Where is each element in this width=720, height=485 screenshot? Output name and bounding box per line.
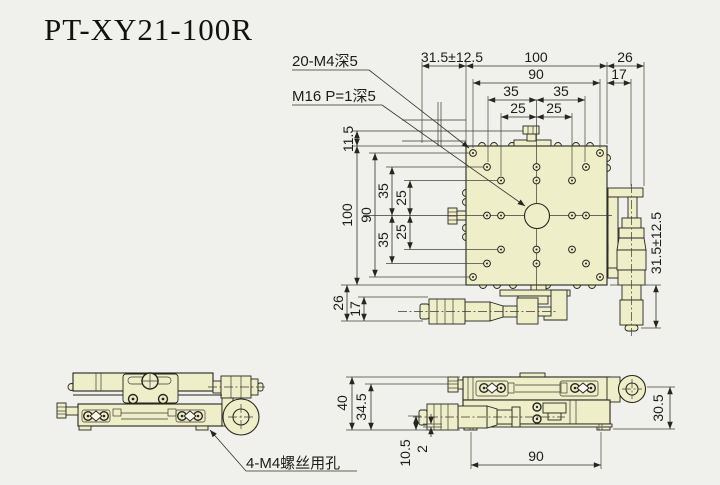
dim-pitch25-left: 25 bbox=[510, 100, 526, 116]
front-left-knob[interactable] bbox=[57, 403, 78, 418]
side-bearing bbox=[619, 376, 646, 403]
dim-pitch25-top: 25 bbox=[393, 190, 409, 206]
front-center-plate bbox=[123, 373, 178, 404]
dim-bottom-17: 17 bbox=[347, 301, 363, 317]
callout-screw-holes: 4-M4螺丝用孔 bbox=[246, 455, 340, 472]
dim-lip-2: 2 bbox=[414, 445, 430, 453]
dim-right-height-30p5: 30.5 bbox=[650, 394, 666, 421]
front-foot-left bbox=[79, 426, 91, 430]
front-view: 4-M4螺丝用孔 bbox=[57, 373, 357, 472]
dim-mic-axis-10p5: 10.5 bbox=[397, 439, 413, 466]
dim-hole-span-90: 90 bbox=[528, 448, 544, 464]
front-bearing bbox=[223, 399, 259, 435]
dim-travel-right: 31.5±12.5 bbox=[648, 212, 664, 274]
dim-bolt-span-90: 90 bbox=[528, 66, 544, 82]
construction-lines bbox=[352, 62, 523, 146]
dim-overall-width: 100 bbox=[524, 49, 548, 65]
dim-offset-17: 17 bbox=[611, 66, 627, 82]
dim-knob-axis-34p5: 34.5 bbox=[353, 393, 369, 420]
front-foot-right bbox=[196, 426, 208, 430]
dim-pitch25-right: 25 bbox=[546, 100, 562, 116]
callout-mount-holes: 20-M4深5 bbox=[292, 53, 358, 70]
side-view: 40 34.5 10.5 2 90 30.5 bbox=[334, 373, 675, 469]
dim-pitch25-bottom: 25 bbox=[393, 224, 409, 240]
dim-bolt-span-90-left: 90 bbox=[358, 207, 374, 223]
dim-edge-11p5: 11.5 bbox=[340, 126, 356, 152]
dim-overall-height: 100 bbox=[339, 203, 355, 227]
dim-pitch35-left: 35 bbox=[503, 83, 519, 99]
top-lock-knob bbox=[514, 126, 551, 146]
side-left-knob[interactable] bbox=[448, 377, 463, 392]
front-callout: 4-M4螺丝用孔 bbox=[210, 430, 357, 472]
dim-height-40: 40 bbox=[334, 395, 350, 411]
x-axis-micrometer[interactable] bbox=[398, 285, 570, 324]
top-view: 31.5±12.5 100 26 90 17 35 35 25 25 bbox=[292, 49, 664, 336]
dim-pitch35-right: 35 bbox=[553, 83, 569, 99]
engineering-drawing: 31.5±12.5 100 26 90 17 35 35 25 25 bbox=[0, 0, 720, 485]
dim-pitch35-bottom: 35 bbox=[375, 232, 391, 248]
dim-travel-top: 31.5±12.5 bbox=[421, 49, 483, 65]
callout-center-thread: M16 P=1深5 bbox=[292, 88, 376, 105]
y-axis-micrometer[interactable] bbox=[617, 184, 646, 336]
dim-pitch35-top: 35 bbox=[375, 183, 391, 199]
dim-bottom-26: 26 bbox=[330, 295, 346, 311]
dim-side-26: 26 bbox=[617, 49, 633, 65]
left-lock-knob bbox=[448, 208, 466, 224]
